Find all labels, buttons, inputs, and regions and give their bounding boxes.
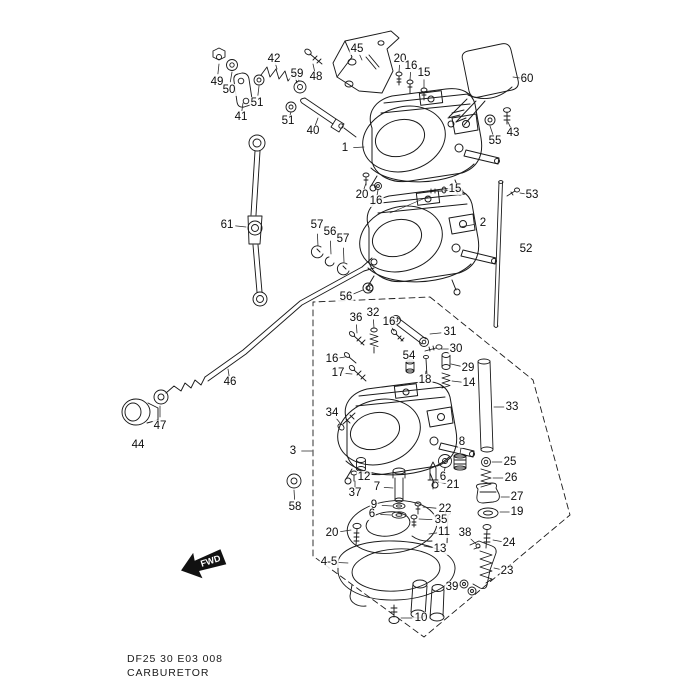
- parts-fiche-page: FWD 495041514259514048452016156043551152…: [0, 0, 700, 700]
- part-label-59: 59: [290, 68, 305, 80]
- part-label-50: 50: [222, 84, 237, 96]
- part-label-57: 57: [336, 233, 351, 245]
- part-label-42: 42: [267, 53, 282, 65]
- part-label-32: 32: [366, 307, 381, 319]
- part-label-40: 40: [306, 125, 321, 137]
- part-label-13: 13: [433, 543, 448, 555]
- part-label-15: 15: [417, 67, 432, 79]
- part-label-20: 20: [325, 527, 340, 539]
- part-label-10: 10: [414, 612, 429, 624]
- part-label-31: 31: [443, 326, 458, 338]
- part-label-44: 44: [131, 439, 146, 451]
- part-label-16: 16: [382, 316, 397, 328]
- part-label-19: 19: [510, 506, 525, 518]
- part-label-11: 11: [437, 526, 451, 538]
- part-label-37: 37: [348, 487, 363, 499]
- part-label-23: 23: [500, 565, 515, 577]
- part-label-51: 51: [281, 115, 296, 127]
- part-label-3: 3: [289, 445, 297, 457]
- part-label-48: 48: [309, 71, 324, 83]
- part-label-30: 30: [449, 343, 464, 355]
- part-label-18: 18: [418, 374, 433, 386]
- part-label-15: 15: [448, 183, 463, 195]
- part-label-24: 24: [502, 537, 517, 549]
- part-labels-layer: 4950415142595140484520161560435511520162…: [0, 0, 700, 700]
- part-label-55: 55: [488, 135, 503, 147]
- part-label-2: 2: [479, 217, 487, 229]
- part-label-34: 34: [325, 407, 340, 419]
- footer: DF25 30 E03 008 CARBURETOR: [127, 652, 223, 680]
- part-label-38: 38: [458, 527, 473, 539]
- part-label-12: 12: [357, 471, 372, 483]
- part-label-27: 27: [510, 491, 525, 503]
- page-title: CARBURETOR: [127, 666, 223, 680]
- part-label-4-5: 4-5: [320, 556, 339, 568]
- part-label-52: 52: [519, 243, 534, 255]
- part-label-43: 43: [506, 127, 521, 139]
- part-label-35: 35: [434, 514, 449, 526]
- part-label-17: 17: [331, 367, 346, 379]
- part-label-46: 46: [223, 376, 238, 388]
- part-label-7: 7: [373, 481, 381, 493]
- part-label-56: 56: [339, 291, 354, 303]
- part-label-26: 26: [504, 472, 519, 484]
- part-label-25: 25: [503, 456, 518, 468]
- part-label-51: 51: [250, 97, 265, 109]
- part-label-53: 53: [525, 189, 540, 201]
- part-label-60: 60: [520, 73, 535, 85]
- part-label-29: 29: [461, 362, 476, 374]
- part-label-45: 45: [350, 43, 365, 55]
- part-label-6: 6: [368, 508, 376, 520]
- part-label-21: 21: [446, 479, 461, 491]
- part-label-16: 16: [369, 195, 384, 207]
- part-label-33: 33: [505, 401, 520, 413]
- part-label-20: 20: [355, 189, 370, 201]
- part-label-41: 41: [234, 111, 249, 123]
- part-label-1: 1: [341, 142, 349, 154]
- part-label-58: 58: [288, 501, 303, 513]
- part-label-54: 54: [402, 350, 417, 362]
- part-label-39: 39: [445, 581, 460, 593]
- part-label-14: 14: [462, 377, 477, 389]
- part-label-61: 61: [220, 219, 235, 231]
- part-label-47: 47: [153, 420, 168, 432]
- part-label-16: 16: [325, 353, 340, 365]
- part-label-8: 8: [458, 436, 466, 448]
- part-label-36: 36: [349, 312, 364, 324]
- model-code: DF25 30 E03 008: [127, 652, 223, 666]
